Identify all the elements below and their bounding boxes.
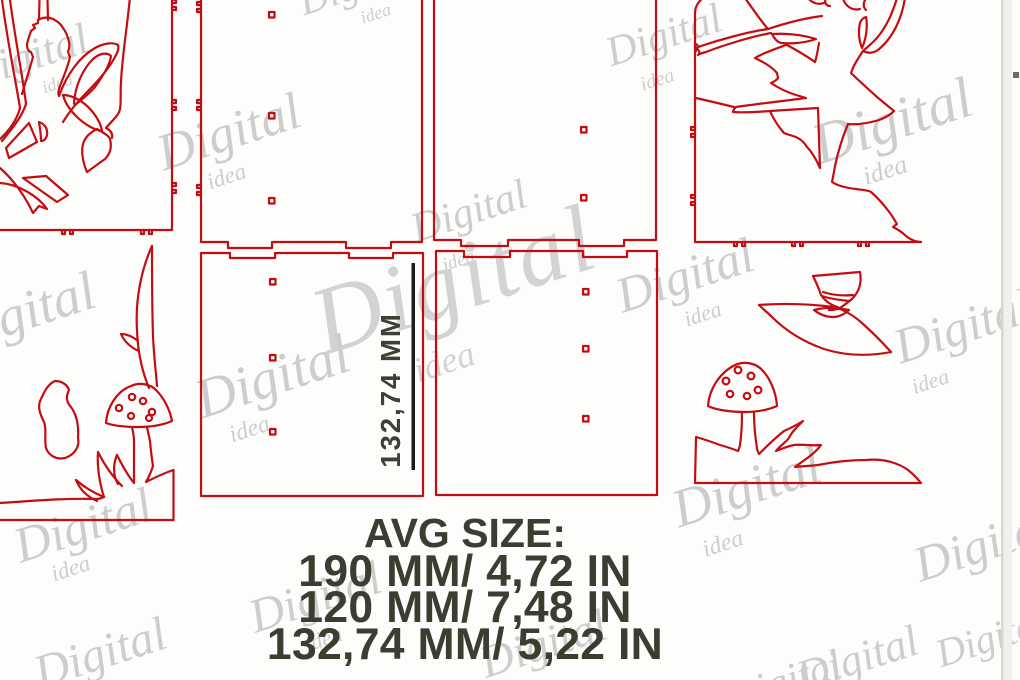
svg-text:132,74 MM: 132,74 MM: [375, 312, 406, 468]
svg-text:132,74 MM/ 5,22 IN: 132,74 MM/ 5,22 IN: [267, 620, 663, 669]
